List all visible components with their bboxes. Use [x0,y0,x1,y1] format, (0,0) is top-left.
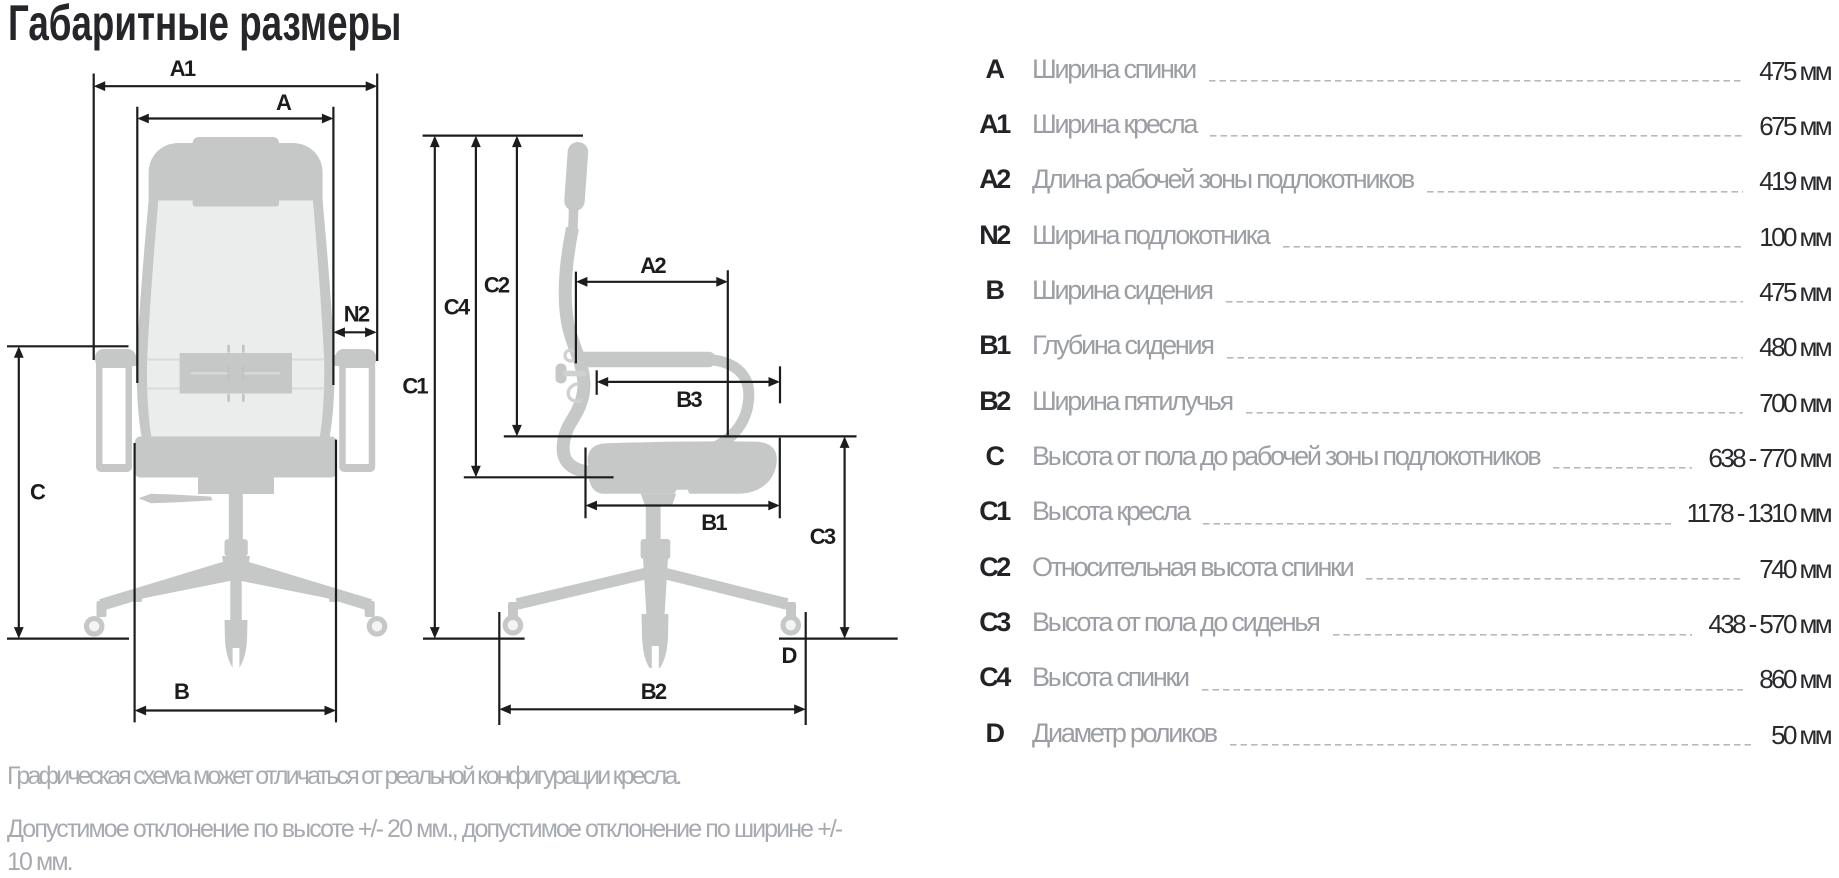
svg-text:C4: C4 [444,295,471,320]
svg-text:B2: B2 [641,679,667,704]
svg-text:B: B [174,679,189,704]
svg-text:B1: B1 [701,510,727,535]
svg-text:A: A [276,90,292,115]
svg-text:A2: A2 [640,253,666,278]
svg-text:A1: A1 [170,56,196,81]
svg-text:C3: C3 [810,524,836,549]
svg-text:D: D [781,643,796,668]
svg-text:N2: N2 [344,302,370,327]
svg-text:C: C [30,480,46,505]
svg-text:B3: B3 [676,387,702,412]
svg-text:C1: C1 [402,374,428,399]
svg-text:C2: C2 [484,273,510,298]
